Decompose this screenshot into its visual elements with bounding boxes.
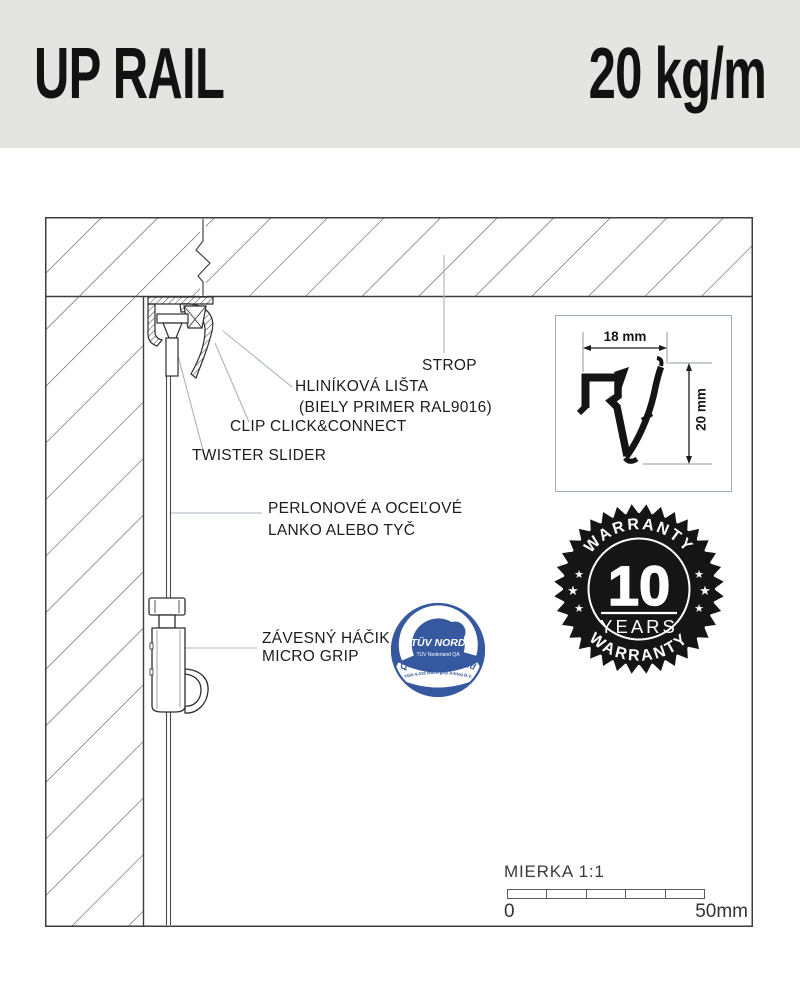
warranty-badge: WARRANTY WARRANTY 10 YEARS ★ ★ ★ ★ ★ ★: [551, 501, 727, 677]
star-icon: ★: [694, 568, 704, 581]
ruler-segment: [508, 890, 547, 898]
scale-ruler: [507, 889, 705, 899]
label-twister: TWISTER SLIDER: [192, 446, 326, 466]
warranty-number: 10: [608, 554, 670, 617]
rail-profile: [579, 358, 662, 461]
star-icon: ★: [694, 602, 704, 615]
page-title: UP RAIL: [34, 38, 224, 110]
micro-grip-hook: [149, 598, 208, 713]
warranty-years-label: YEARS: [600, 616, 678, 637]
label-strop: STROP: [422, 356, 477, 376]
rail-top-flange: [148, 297, 213, 304]
scale-end-label: 50mm: [695, 901, 748, 923]
label-rail-name: HLINÍKOVÁ LIŠTA: [295, 377, 428, 397]
header: UP RAIL 20 kg/m: [0, 0, 800, 148]
width-dimension: 18 mm: [597, 329, 653, 344]
capacity-label: 20 kg/m: [588, 38, 766, 110]
label-rail-primer: (BIELY PRIMER RAL9016): [299, 398, 492, 418]
label-hook-1: ZÁVESNÝ HÁČIK: [262, 629, 390, 649]
wall-hatch: [47, 297, 144, 927]
label-cable-1: PERLONOVÉ A OCEĽOVÉ: [268, 499, 462, 519]
star-icon: ★: [567, 584, 579, 599]
leader-clip: [215, 343, 249, 422]
label-cable-2: LANKO ALEBO TYČ: [268, 521, 415, 541]
label-hook-2: MICRO GRIP: [262, 647, 359, 667]
ruler-segment: [666, 890, 704, 898]
star-icon: ★: [574, 568, 584, 581]
hook-claw: [185, 669, 208, 713]
rail-left-channel: [148, 304, 162, 346]
ceiling-hatch: [45, 219, 753, 297]
leader-rail: [223, 331, 292, 387]
spec-sheet: UP RAIL 20 kg/m: [0, 0, 800, 1000]
star-icon: ★: [574, 602, 584, 615]
scale-start-label: 0: [504, 901, 515, 923]
tuv-brand: TÜV NORD: [411, 636, 466, 649]
star-icon: ★: [699, 584, 711, 599]
twister-slider-part: [157, 314, 188, 376]
ruler-segment: [626, 890, 665, 898]
tuv-nord-badge: TÜV NORD TÜV Nederland QA Quality Approv…: [389, 601, 487, 699]
ruler-segment: [587, 890, 626, 898]
scale-title: MIERKA 1:1: [504, 862, 605, 882]
height-dimension: 20 mm: [694, 387, 709, 433]
label-clip: CLIP CLICK&CONNECT: [230, 417, 407, 437]
ruler-segment: [547, 890, 586, 898]
